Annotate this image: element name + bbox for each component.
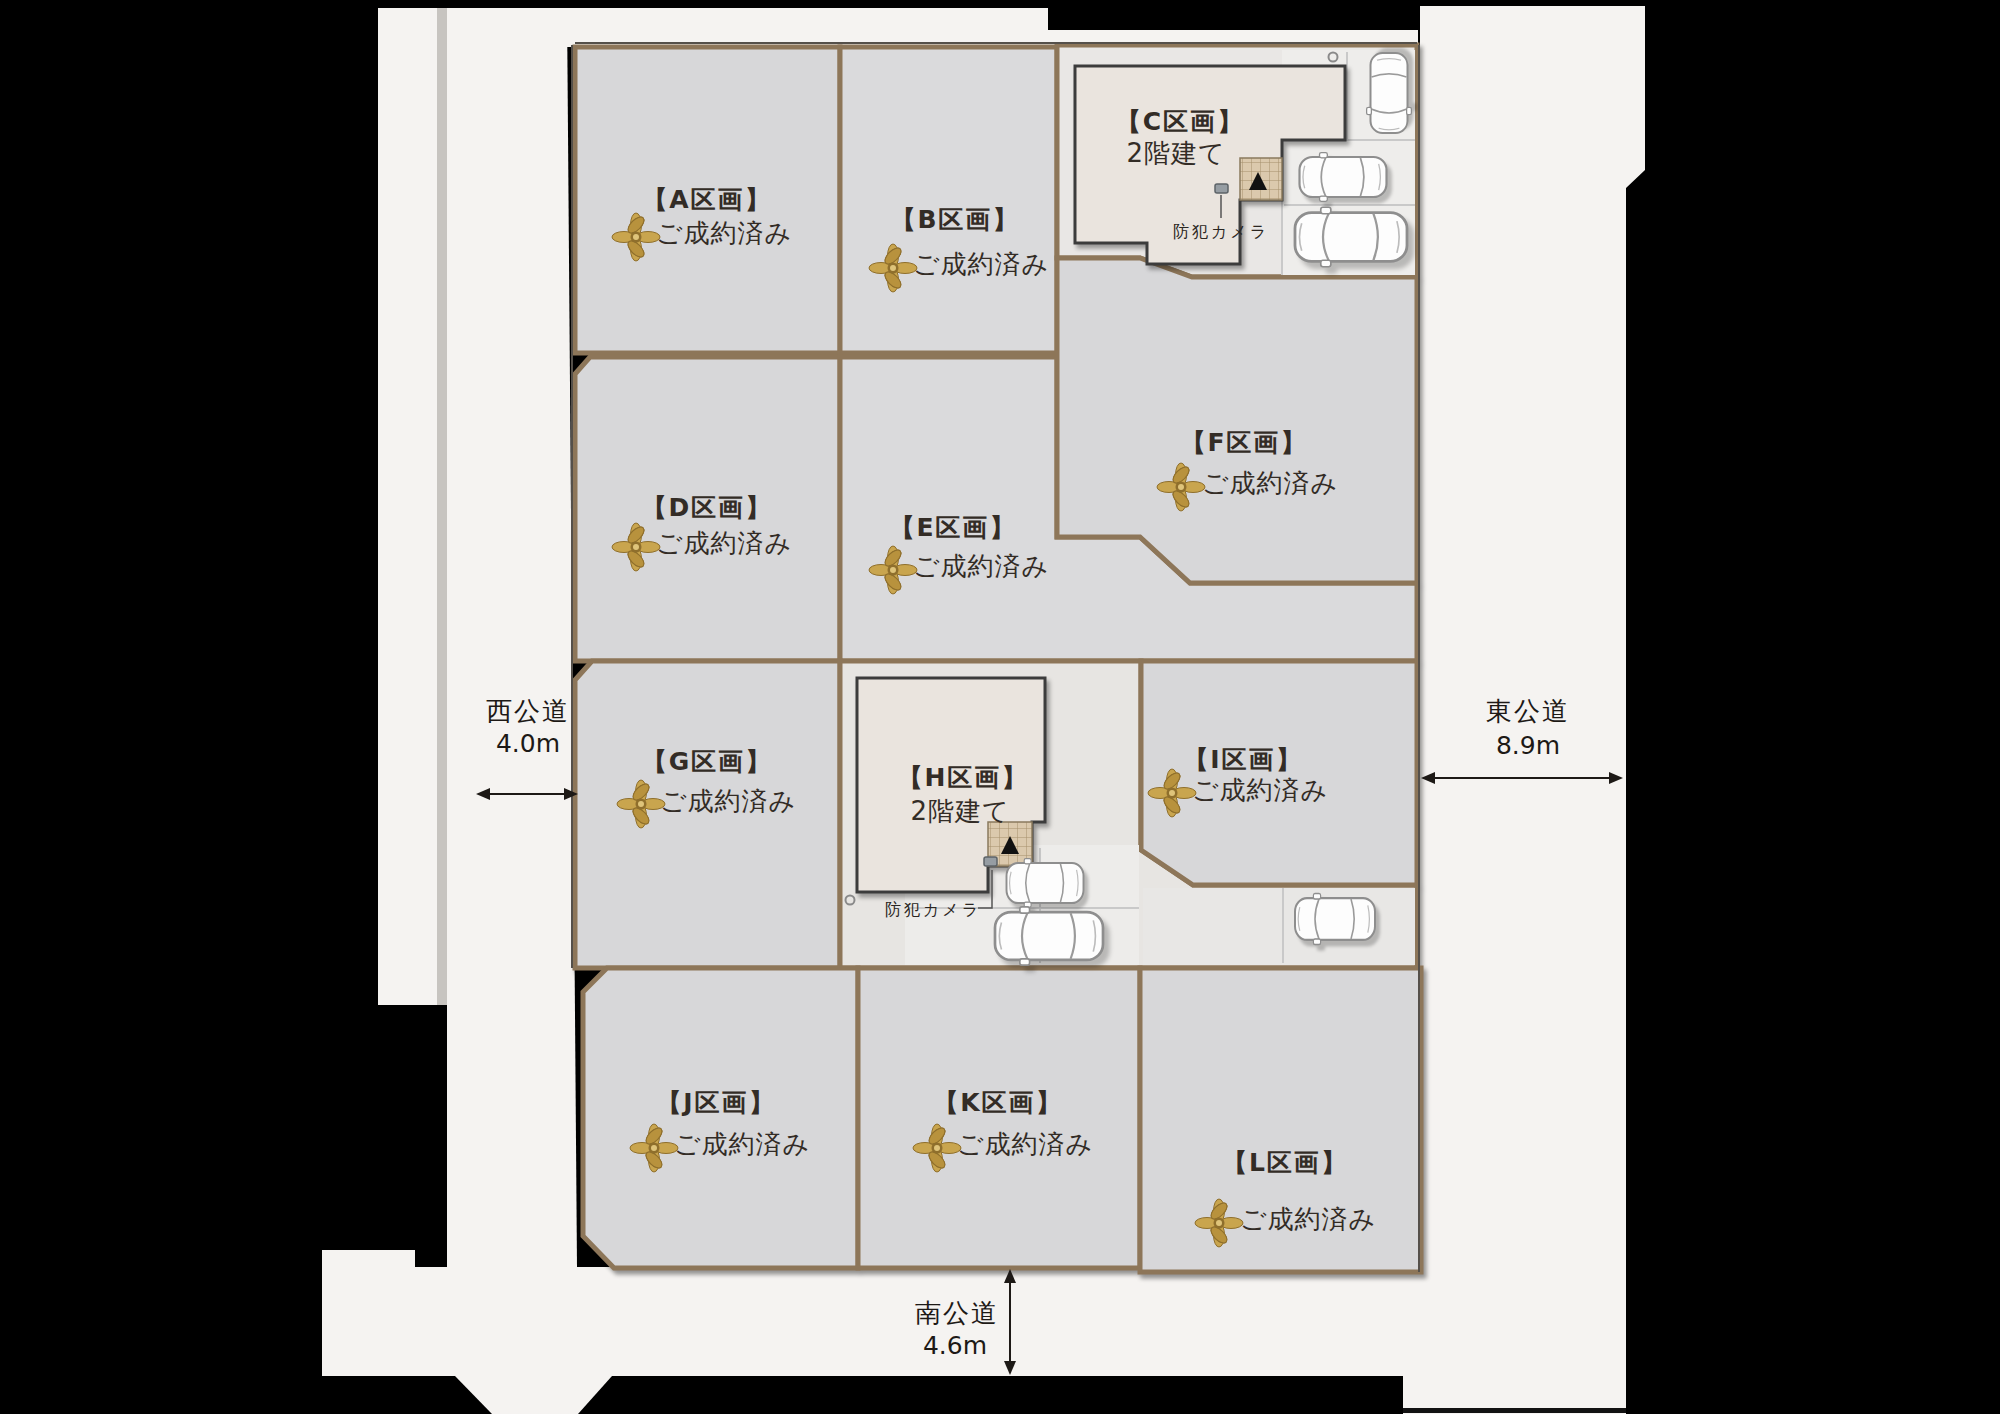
north-margin-left bbox=[474, 8, 1048, 47]
lot-k-title: 【K区画】 bbox=[933, 1088, 1062, 1117]
lot-d-status: ご成約済み bbox=[656, 528, 792, 558]
lot-i-title: 【I区画】 bbox=[1183, 745, 1302, 774]
lot-c-title: 【C区画】 bbox=[1116, 107, 1244, 136]
lot-k-area bbox=[858, 968, 1140, 1268]
south-road-stub bbox=[455, 1376, 612, 1414]
west-road bbox=[447, 8, 577, 1267]
west-road-name: 西公道 bbox=[486, 696, 570, 726]
car-icon bbox=[1295, 894, 1375, 945]
lot-j-area bbox=[583, 968, 858, 1268]
lot-e-status: ご成約済み bbox=[913, 551, 1049, 581]
west-road-far-side bbox=[378, 8, 437, 1005]
lot-k-status: ご成約済み bbox=[957, 1129, 1093, 1159]
security-camera-label: 防犯カメラ bbox=[1173, 222, 1269, 241]
car-icon bbox=[1295, 207, 1407, 266]
lot-b-area bbox=[840, 47, 1057, 353]
lot-b-title: 【B区画】 bbox=[890, 205, 1019, 234]
lot-h-floors: 2階建て bbox=[910, 796, 1009, 826]
car-icon bbox=[1300, 153, 1387, 202]
lot-j-status: ご成約済み bbox=[674, 1129, 810, 1159]
lot-g-title: 【G区画】 bbox=[642, 747, 773, 776]
bottom-edge-line bbox=[1403, 1408, 1626, 1413]
security-camera-icon bbox=[1215, 184, 1228, 193]
west-road-width: 4.0m bbox=[496, 729, 560, 758]
lot-l-title: 【L区画】 bbox=[1222, 1148, 1348, 1177]
lot-l-status: ご成約済み bbox=[1240, 1204, 1376, 1234]
lot-a-status: ご成約済み bbox=[656, 218, 792, 248]
east-road-width: 8.9m bbox=[1496, 731, 1560, 760]
security-camera-label: 防犯カメラ bbox=[885, 900, 981, 919]
east-road-name: 東公道 bbox=[1486, 696, 1570, 726]
site-plan-svg: 防犯カメラ 防犯カメラ 【A区画】 ご成約済み 【B区画】 ご成約済み 【C区画… bbox=[0, 0, 2000, 1414]
lot-b-status: ご成約済み bbox=[913, 249, 1049, 279]
lot-h-title: 【H区画】 bbox=[898, 763, 1029, 792]
lot-j-title: 【J区画】 bbox=[656, 1088, 775, 1117]
site-plan-canvas: 防犯カメラ 防犯カメラ 【A区画】 ご成約済み 【B区画】 ご成約済み 【C区画… bbox=[0, 0, 2000, 1414]
west-road-centerline bbox=[437, 8, 447, 1005]
lot-i-status: ご成約済み bbox=[1192, 775, 1328, 805]
car-icon bbox=[1007, 859, 1084, 908]
south-road-width: 4.6m bbox=[923, 1331, 987, 1360]
car-icon bbox=[995, 907, 1103, 965]
south-road-name: 南公道 bbox=[915, 1298, 999, 1328]
lot-f-area bbox=[1057, 258, 1417, 583]
lot-c-floors: 2階建て bbox=[1126, 138, 1225, 168]
lot-e-title: 【E区画】 bbox=[889, 513, 1016, 542]
lot-d-title: 【D区画】 bbox=[642, 493, 773, 522]
security-camera-icon bbox=[984, 857, 997, 866]
lot-a-title: 【A区画】 bbox=[642, 185, 771, 214]
lot-f-status: ご成約済み bbox=[1202, 468, 1338, 498]
car-icon bbox=[1367, 53, 1412, 133]
lot-f-title: 【F区画】 bbox=[1180, 428, 1307, 457]
lot-g-status: ご成約済み bbox=[660, 786, 796, 816]
